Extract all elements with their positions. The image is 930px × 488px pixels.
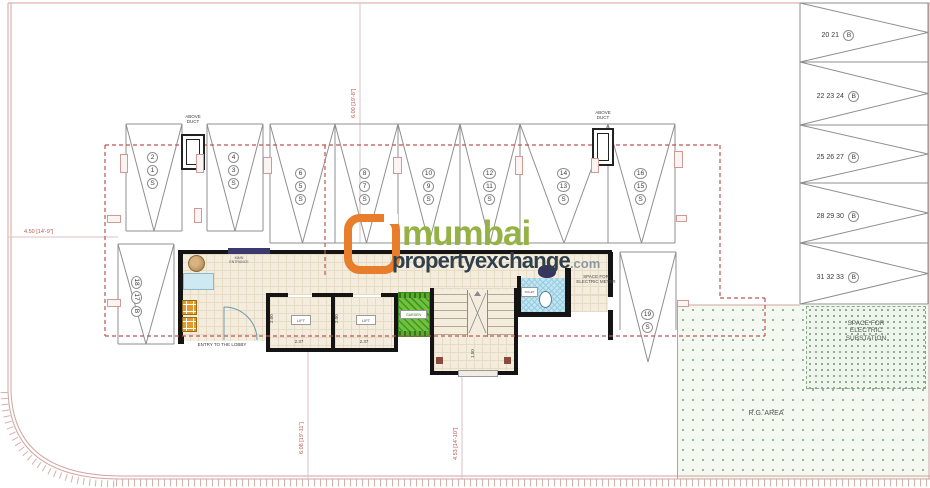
floor-plan: TOILET MAIN ENTRANCE ABOVE DUCT ABOVE DU… (0, 0, 930, 488)
column-stub (674, 151, 683, 168)
stall-label: 109S (422, 168, 435, 205)
stall-type-badge: 5 (295, 181, 306, 192)
stall-type-badge: S (558, 194, 569, 205)
stall-type-badge: 19 (641, 309, 654, 320)
stall-label: 21S (147, 152, 158, 189)
column-stub (194, 208, 202, 223)
above-duct-label: ABOVE DUCT (180, 114, 206, 124)
stair-depth-dim: 4.53 [14'-10"] (453, 398, 463, 460)
column-stub (120, 154, 128, 173)
stall-type-badge: 8 (359, 168, 370, 179)
garden-label: GARDEN (400, 310, 427, 319)
lift-depth-dim: 2.00 (269, 308, 277, 330)
entry-lobby-label: ENTRY TO THE LOBBY (192, 342, 252, 347)
stall-type-badge: 1 (147, 165, 158, 176)
stall-type-badge: 4 (228, 152, 239, 163)
stall-type-badge: 11 (483, 181, 496, 192)
stall-label: 25 26 27 B (803, 148, 873, 166)
stall-type-badge: 3 (228, 165, 239, 176)
substation-label: SPACE FOR ELECTRIC SUBSTATION (835, 320, 897, 342)
stall-type-badge: 13 (557, 181, 570, 192)
lift-depth-dim: 2.00 (334, 308, 342, 330)
column-stub (107, 299, 121, 307)
stall-type-badge: S (642, 322, 653, 333)
logo-suffix-com: .com (570, 256, 600, 271)
top-span-dim: 6.00 [19'-8"] (351, 56, 361, 118)
stall-type-badge: 18 (132, 276, 143, 289)
stall-label: 1817B (130, 268, 144, 324)
lift-width-dim: 2.37 (284, 339, 314, 344)
logo-word-mumbai: mumbai (402, 216, 530, 251)
column-stub (591, 158, 599, 173)
stall-label: 28 29 30 B (803, 207, 873, 225)
stall-type-badge: 9 (423, 181, 434, 192)
stall-type-badge: B (848, 152, 859, 163)
plot-left-dim: 4.50 [14'-9"] (24, 229, 53, 235)
lift-width-dim: 2.37 (349, 339, 379, 344)
column-stub (263, 157, 272, 174)
watermark-logo: mumbai propertyexchange.com (340, 208, 600, 288)
column-stub (196, 154, 204, 173)
stall-type-badge: 16 (634, 168, 647, 179)
stall-label: 43S (228, 152, 239, 189)
lobby-depth-dim: 6.08 [19'-11"] (299, 392, 309, 454)
column-stub (676, 215, 687, 222)
column-stub (393, 157, 402, 174)
above-duct-label: ABOVE DUCT (590, 110, 616, 120)
column-stub (107, 215, 121, 223)
stall-label: 87S (359, 168, 370, 205)
stall-type-badge: 7 (359, 181, 370, 192)
stall-label: 31 32 33 B (803, 268, 873, 286)
stall-label: 1413S (557, 168, 570, 205)
stall-type-badge: S (228, 178, 239, 189)
stall-type-badge: S (635, 194, 646, 205)
stair-width-dim: 1.50 (470, 343, 478, 365)
stall-type-badge: B (132, 306, 143, 317)
stall-type-badge: S (423, 194, 434, 205)
lift-label: LIFT (291, 315, 311, 325)
stall-label: 1211S (483, 168, 496, 205)
stall-label: 19S (641, 309, 654, 333)
logo-word-propertyexchange: propertyexchange (392, 248, 570, 273)
rg-area-label: R.G. AREA (736, 410, 796, 418)
stall-label: 1615S (634, 168, 647, 205)
stall-type-badge: B (848, 272, 859, 283)
stall-type-badge: 15 (634, 181, 647, 192)
stall-type-badge: 14 (557, 168, 570, 179)
stall-label: 20 21 B (803, 26, 873, 44)
stall-type-badge: 2 (147, 152, 158, 163)
stall-label: 22 23 24 B (803, 87, 873, 105)
column-stub (677, 300, 689, 307)
column-stub (515, 156, 523, 175)
lift-label: LIFT (356, 315, 376, 325)
stall-type-badge: S (359, 194, 370, 205)
stall-type-badge: B (848, 91, 859, 102)
stall-type-badge: 6 (295, 168, 306, 179)
stall-type-badge: 17 (132, 291, 143, 304)
stall-type-badge: S (147, 178, 158, 189)
stall-type-badge: B (843, 30, 854, 41)
stall-type-badge: 12 (483, 168, 496, 179)
stall-type-badge: S (484, 194, 495, 205)
stall-type-badge: 10 (422, 168, 435, 179)
stall-type-badge: B (848, 211, 859, 222)
stall-type-badge: S (295, 194, 306, 205)
stall-label: 65S (295, 168, 306, 205)
